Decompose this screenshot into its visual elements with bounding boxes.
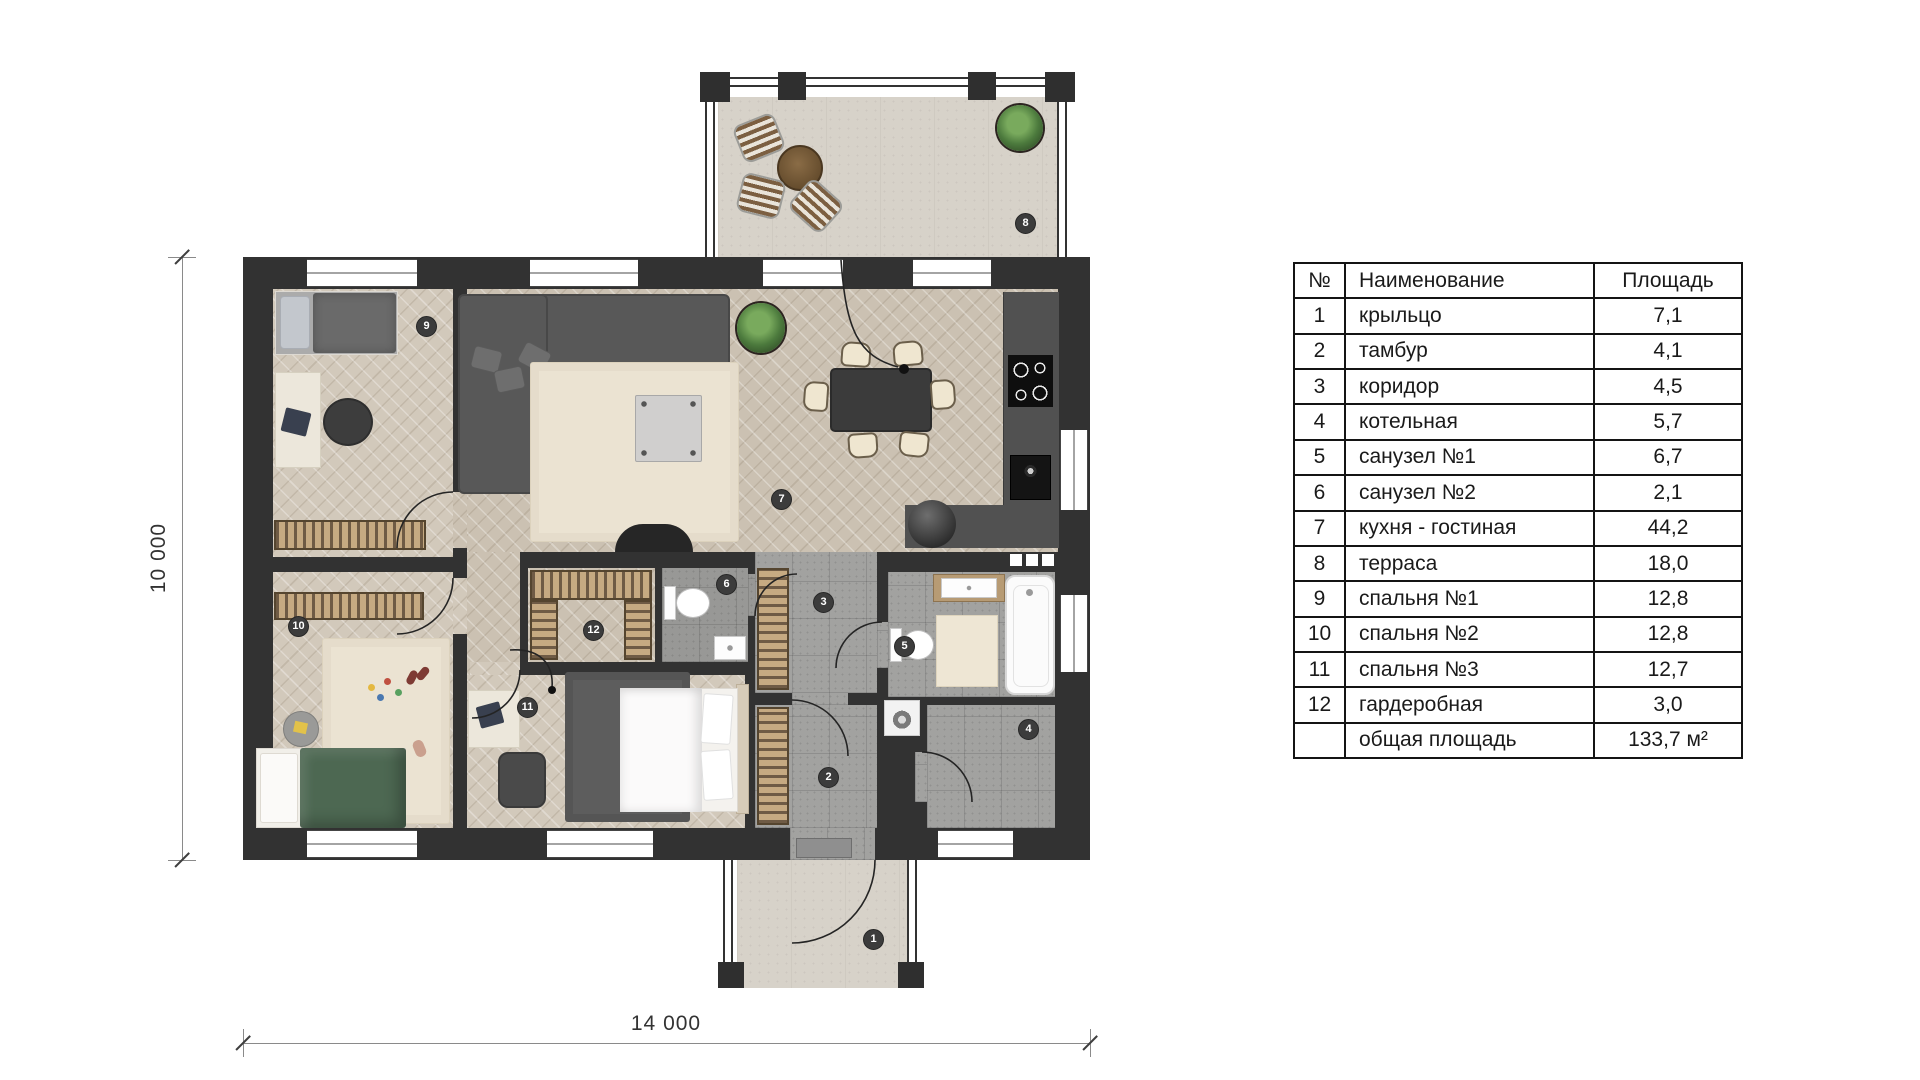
legend-cell: 4,5 — [1593, 370, 1741, 403]
vanity-basin — [941, 578, 997, 598]
washing-machine — [884, 700, 920, 736]
door-mat — [796, 838, 852, 858]
bath-faucet — [1026, 589, 1033, 596]
legend-row: 3коридор4,5 — [1295, 368, 1741, 403]
legend-row: 5санузел №16,7 — [1295, 439, 1741, 474]
bed-duvet — [620, 688, 702, 812]
dining-table — [830, 368, 932, 432]
armchair — [498, 752, 546, 808]
legend-row: 11спальня №312,7 — [1295, 651, 1741, 686]
room-badge-2: 2 — [818, 767, 839, 788]
dining-chair — [929, 379, 956, 411]
door-gap-bathroom1 — [877, 622, 888, 668]
door-gap-bedroom2 — [453, 578, 467, 634]
dining-chair — [847, 432, 879, 459]
dining-chair — [898, 431, 930, 459]
terrace-door — [913, 259, 991, 287]
legend-cell: котельная — [1346, 405, 1593, 438]
room-badge-10: 10 — [288, 616, 309, 637]
legend-cell: спальня №3 — [1346, 653, 1593, 686]
toilet-bowl — [676, 588, 710, 618]
room-badge-4: 4 — [1018, 719, 1039, 740]
legend-cell: санузел №1 — [1346, 441, 1593, 474]
window — [1060, 595, 1088, 672]
toy — [368, 684, 375, 691]
kitchen-counter-right — [1003, 292, 1059, 548]
legend-cell: 3 — [1295, 370, 1346, 403]
cooktop — [1008, 355, 1053, 407]
legend-row: 7кухня - гостиная44,2 — [1295, 510, 1741, 545]
legend-cell: 18,0 — [1593, 547, 1741, 580]
toy — [377, 694, 384, 701]
legend-cell: 4 — [1295, 405, 1346, 438]
dresser — [274, 520, 426, 550]
legend-cell: 12,8 — [1593, 618, 1741, 651]
toilet-tank — [664, 586, 676, 620]
legend-cell: 6 — [1295, 476, 1346, 509]
legend-cell: 12,7 — [1593, 653, 1741, 686]
legend-row: 9спальня №112,8 — [1295, 580, 1741, 615]
dimension-line-horizontal — [243, 1043, 1090, 1044]
sink — [714, 636, 746, 660]
legend-cell: спальня №2 — [1346, 618, 1593, 651]
legend-row: 1крыльцо7,1 — [1295, 297, 1741, 332]
terrace-post — [700, 72, 730, 102]
bed-pillow — [260, 753, 298, 823]
legend-cell: 44,2 — [1593, 512, 1741, 545]
porch-post — [718, 962, 744, 988]
legend-cell: спальня №1 — [1346, 582, 1593, 615]
window — [530, 259, 638, 287]
kitchen-bin — [908, 500, 956, 548]
dimension-label-vertical: 10 000 — [147, 498, 173, 618]
door-gap-bedroom3 — [470, 662, 520, 675]
legend-cell: общая площадь — [1346, 724, 1593, 757]
tambour-rack — [757, 707, 789, 825]
dining-chair — [892, 340, 924, 368]
legend-row: 10спальня №212,8 — [1295, 616, 1741, 651]
dimension-line-vertical — [182, 257, 183, 860]
door-gap-boiler — [915, 752, 927, 802]
legend-cell: крыльцо — [1346, 299, 1593, 332]
legend-cell: тамбур — [1346, 335, 1593, 368]
dining-chair — [802, 381, 829, 413]
side-table-item — [293, 721, 308, 734]
desk-chair — [323, 398, 373, 446]
legend-header-cell: № — [1295, 264, 1346, 297]
room-badge-3: 3 — [813, 592, 834, 613]
window — [1060, 430, 1088, 510]
door-gap-bedroom1 — [453, 492, 467, 548]
window — [307, 830, 417, 858]
legend-cell: 12,8 — [1593, 582, 1741, 615]
wardrobe-rack — [624, 600, 652, 660]
toy — [395, 689, 402, 696]
legend-header-cell: Наименование — [1346, 264, 1593, 297]
bed-pillow — [280, 296, 310, 349]
terrace-post — [1045, 72, 1075, 102]
terrace-post — [968, 72, 996, 100]
legend-row: 2тамбур4,1 — [1295, 333, 1741, 368]
legend-header-row: №НаименованиеПлощадь — [1295, 264, 1741, 297]
legend-cell: 3,0 — [1593, 688, 1741, 721]
room-badge-6: 6 — [716, 574, 737, 595]
legend-cell: 2 — [1295, 335, 1346, 368]
window — [307, 259, 417, 287]
hallway-floor — [467, 552, 520, 675]
wall-niche — [1010, 554, 1022, 566]
legend-cell: кухня - гостиная — [1346, 512, 1593, 545]
dining-chair — [840, 341, 872, 368]
legend-row: 6санузел №22,1 — [1295, 474, 1741, 509]
legend-cell: 133,7 м² — [1593, 724, 1741, 757]
kitchen-sink — [1010, 455, 1051, 500]
legend-row: 4котельная5,7 — [1295, 403, 1741, 438]
toy — [384, 678, 391, 685]
legend-cell: гардеробная — [1346, 688, 1593, 721]
bed-blanket-green — [300, 748, 406, 828]
legend-table: №НаименованиеПлощадь1крыльцо7,12тамбур4,… — [1293, 262, 1743, 759]
legend-row: 8терраса18,0 — [1295, 545, 1741, 580]
terrace-rail-right — [1057, 75, 1067, 257]
legend-header-cell: Площадь — [1593, 264, 1741, 297]
legend-cell: 6,7 — [1593, 441, 1741, 474]
legend-row: 12гардеробная3,0 — [1295, 686, 1741, 721]
terrace-rail-top — [705, 77, 1071, 87]
bathtub-inner — [1013, 585, 1049, 687]
terrace-door — [763, 259, 843, 287]
legend-cell — [1295, 724, 1346, 757]
window — [547, 830, 653, 858]
room-badge-7: 7 — [771, 489, 792, 510]
coffee-table — [635, 395, 702, 462]
legend-cell: 7,1 — [1593, 299, 1741, 332]
porch-post — [898, 962, 924, 988]
terrace-plant — [997, 105, 1043, 151]
terrace-post — [778, 72, 806, 100]
room-badge-8: 8 — [1015, 213, 1036, 234]
floor-plan-sheet: 123456789101112 10 000 14 000 №Наименова… — [0, 0, 1920, 1080]
legend-cell: 8 — [1295, 547, 1346, 580]
window — [938, 830, 1013, 858]
living-plant — [737, 303, 785, 353]
wardrobe-rack — [530, 600, 558, 660]
room-badge-9: 9 — [416, 316, 437, 337]
room-badge-5: 5 — [894, 636, 915, 657]
wardrobe-rack — [530, 570, 652, 600]
legend-cell: 11 — [1295, 653, 1346, 686]
room-badge-11: 11 — [517, 697, 538, 718]
porch-floor — [737, 860, 907, 988]
bath-mat — [936, 615, 998, 687]
room-badge-1: 1 — [863, 929, 884, 950]
legend-row: общая площадь133,7 м² — [1295, 722, 1741, 757]
legend-cell: 2,1 — [1593, 476, 1741, 509]
bed-blanket — [313, 293, 396, 353]
legend-cell: санузел №2 — [1346, 476, 1593, 509]
bed-pillow — [700, 749, 733, 801]
legend-cell: 12 — [1295, 688, 1346, 721]
corridor-rack — [757, 568, 789, 690]
wall-niche — [1042, 554, 1054, 566]
legend-cell: 5,7 — [1593, 405, 1741, 438]
legend-cell: 10 — [1295, 618, 1346, 651]
legend-cell: терраса — [1346, 547, 1593, 580]
terrace-rail-left — [705, 75, 715, 257]
door-gap-bathroom2 — [748, 574, 755, 616]
legend-cell: 7 — [1295, 512, 1346, 545]
bed-pillow — [700, 693, 733, 745]
room-badge-12: 12 — [583, 620, 604, 641]
legend-cell: 5 — [1295, 441, 1346, 474]
legend-cell: 9 — [1295, 582, 1346, 615]
dimension-label-horizontal: 14 000 — [566, 1012, 766, 1036]
legend-cell: 1 — [1295, 299, 1346, 332]
door-gap-corridor-tambour — [792, 693, 848, 705]
wall-niche — [1026, 554, 1038, 566]
legend-cell: коридор — [1346, 370, 1593, 403]
legend-cell: 4,1 — [1593, 335, 1741, 368]
